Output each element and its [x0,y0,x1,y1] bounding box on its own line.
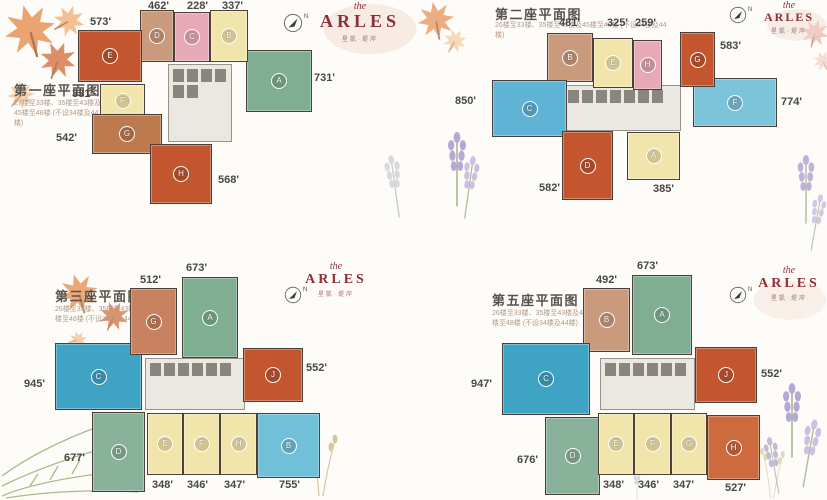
tower3-lift-core [145,358,245,410]
tower2-unit-B: B [547,33,593,82]
arles-logo: the ARLES 星凱·堤岸 [304,2,416,43]
arles-logo-chinese: 星凱·堤岸 [757,26,821,35]
tower3-unit-G-area: 512' [140,274,161,286]
unit-letter-badge: C [538,371,554,387]
unit-letter-badge: D [580,158,596,174]
arles-logo-chinese: 星凱·堤岸 [304,34,416,43]
unit-letter-badge: C [184,29,200,45]
unit-letter-badge: E [157,436,173,452]
tower5-unit-B-area: 492' [596,274,617,286]
tower3-unit-E: E [147,413,183,475]
unit-letter-badge: A [271,73,287,89]
unit-letter-badge: D [149,28,165,44]
unit-letter-badge: C [522,101,538,117]
tower1-unit-F: F [100,84,145,117]
arles-logo: the ARLES 星凱·堤岸 [753,266,825,302]
tower2-unit-D: D [562,131,613,200]
tower1-panel: 第一座平面图 27楼至33楼、35楼至43楼及45楼至48楼 (不设34楼及44… [0,0,413,250]
compass-n-label: N [748,287,752,293]
tower3-unit-H: H [220,413,257,475]
arles-logo-chinese: 星凱·堤岸 [753,293,825,302]
unit-letter-badge: G [690,52,706,68]
unit-letter-badge: G [681,436,697,452]
unit-letter-badge: D [111,444,127,460]
unit-letter-badge: G [146,314,162,330]
unit-letter-badge: F [727,95,743,111]
tower3-unit-H-area: 347' [224,479,245,491]
tower5-unit-F-area: 346' [638,479,659,491]
unit-letter-badge: E [608,436,624,452]
tower1-unit-H-area: 568' [218,174,239,186]
tower2-panel: 第二座平面图 26楼至33楼、35楼至43楼及45楼至48楼 (不设34楼及44… [413,0,827,250]
tower5-unit-D-area: 676' [517,454,538,466]
tower2-unit-H: H [633,40,662,90]
tower5-lift-core [600,358,695,410]
tower3-unit-F-area: 346' [187,479,208,491]
unit-letter-badge: B [562,50,578,66]
tower2-unit-A-area: 385' [653,183,674,195]
unit-letter-badge: E [605,55,621,71]
tower2-unit-G: G [680,32,715,87]
tower2-unit-C: C [492,80,567,137]
tower1-unit-G-area: 542' [56,132,77,144]
unit-letter-badge: J [718,367,734,383]
tower1-unit-F-area: 331' [72,88,93,100]
tower2-unit-E-area: 325' [607,17,628,29]
tower3-unit-D-area: 677' [64,452,85,464]
tower1-unit-H: H [150,144,212,204]
tower1-unit-A: A [246,50,312,112]
tower1-unit-E: E [78,30,142,82]
unit-letter-badge: D [565,448,581,464]
tower1-unit-A-area: 731' [314,72,335,84]
unit-letter-badge: H [726,440,742,456]
unit-letter-badge: A [202,310,218,326]
unit-letter-badge: B [221,28,237,44]
tower5-unit-A: A [632,275,692,355]
tower5-unit-D: D [545,417,600,495]
tower5-unit-J: J [695,347,757,403]
tower2-unit-A: A [627,132,680,180]
tower3-unit-J: J [243,348,303,402]
tower2-unit-H-area: 259' [635,17,656,29]
tower3-unit-G: G [130,288,177,355]
tower1-unit-B: B [210,10,248,62]
tower5-unit-C-area: 947' [471,378,492,390]
unit-letter-badge: G [119,126,135,142]
arles-logo-name: ARLES [757,11,821,24]
north-compass-icon: N [729,286,752,304]
tower1-note: 27楼至33楼、35楼至43楼及45楼至48楼 (不设34楼及44楼) [14,99,102,129]
unit-letter-badge: A [654,307,670,323]
unit-letter-badge: E [102,48,118,64]
tower5-unit-J-area: 552' [761,368,782,380]
tower5-title: 第五座平面图 [492,290,579,309]
north-compass-icon: N [729,6,752,24]
arles-logo-name: ARLES [304,12,416,32]
unit-letter-badge: H [231,436,247,452]
tower5-unit-F: F [634,413,671,475]
arles-logo: the ARLES 星凱·堤岸 [300,262,372,298]
tower5-unit-G-area: 347' [673,479,694,491]
tower3-unit-C: C [55,343,142,410]
unit-letter-badge: J [265,367,281,383]
tower2-unit-C-area: 850' [455,95,476,107]
tower5-unit-H-area: 527' [725,482,746,494]
tower1-unit-B-area: 337' [222,0,243,12]
arles-logo-the: the [753,266,825,276]
tower1-unit-C-area: 228' [187,0,208,12]
tower5-unit-A-area: 673' [637,260,658,272]
tower2-unit-F-area: 774' [781,96,802,108]
arles-logo-chinese: 星凱·堤岸 [300,289,372,298]
arles-logo: the ARLES 星凱·堤岸 [757,1,821,35]
tower3-unit-B-area: 755' [279,479,300,491]
tower3-unit-B: B [257,413,320,478]
unit-letter-badge: F [194,436,210,452]
tower3-title: 第三座平面图 [55,286,142,305]
tower3-unit-J-area: 552' [306,362,327,374]
arles-logo-the: the [300,262,372,272]
tower2-lift-core [563,85,681,131]
arles-logo-name: ARLES [300,272,372,287]
tower2-unit-G-area: 583' [720,40,741,52]
tower1-unit-C: C [174,12,210,62]
tower2-unit-E: E [593,38,633,88]
tower5-note: 26楼至33楼、35楼至43楼及45楼至48楼 (不设34楼及44楼) [492,309,592,329]
tower1-unit-E-area: 573' [90,16,111,28]
tower3-unit-D: D [92,412,145,492]
compass-n-label: N [748,7,752,13]
tower5-panel: 第五座平面图 26楼至33楼、35楼至43楼及45楼至48楼 (不设34楼及44… [413,250,827,500]
tower5-unit-C: C [502,343,590,415]
tower5-unit-B: B [583,288,630,352]
tower1-lift-core [168,64,232,142]
tower3-unit-C-area: 945' [24,378,45,390]
arles-logo-name: ARLES [753,276,825,291]
tower3-unit-E-area: 348' [152,479,173,491]
tower5-unit-E: E [598,413,634,475]
tower3-unit-F: F [183,413,220,475]
unit-letter-badge: F [645,436,661,452]
tower2-unit-B-area: 481' [559,17,580,29]
unit-letter-badge: C [91,369,107,385]
tower5-unit-G: G [671,413,707,475]
unit-letter-badge: H [640,57,656,73]
tower2-unit-D-area: 582' [539,182,560,194]
tower5-unit-H: H [707,415,760,480]
unit-letter-badge: B [599,312,615,328]
tower3-panel: 第三座平面图 26楼至33楼、35楼至43楼及45楼至48楼 (不设34楼及44… [0,250,413,500]
tower3-unit-A: A [182,277,238,358]
unit-letter-badge: B [281,438,297,454]
unit-letter-badge: H [173,166,189,182]
tower1-unit-D: D [140,10,174,62]
unit-letter-badge: F [115,93,131,109]
tower3-unit-A-area: 673' [186,262,207,274]
unit-letter-badge: A [646,148,662,164]
tower5-unit-E-area: 348' [603,479,624,491]
floorplan-brochure-page: { "brand": {"pre": "the", "name": "ARLES… [0,0,827,500]
tower1-unit-D-area: 462' [148,0,169,12]
